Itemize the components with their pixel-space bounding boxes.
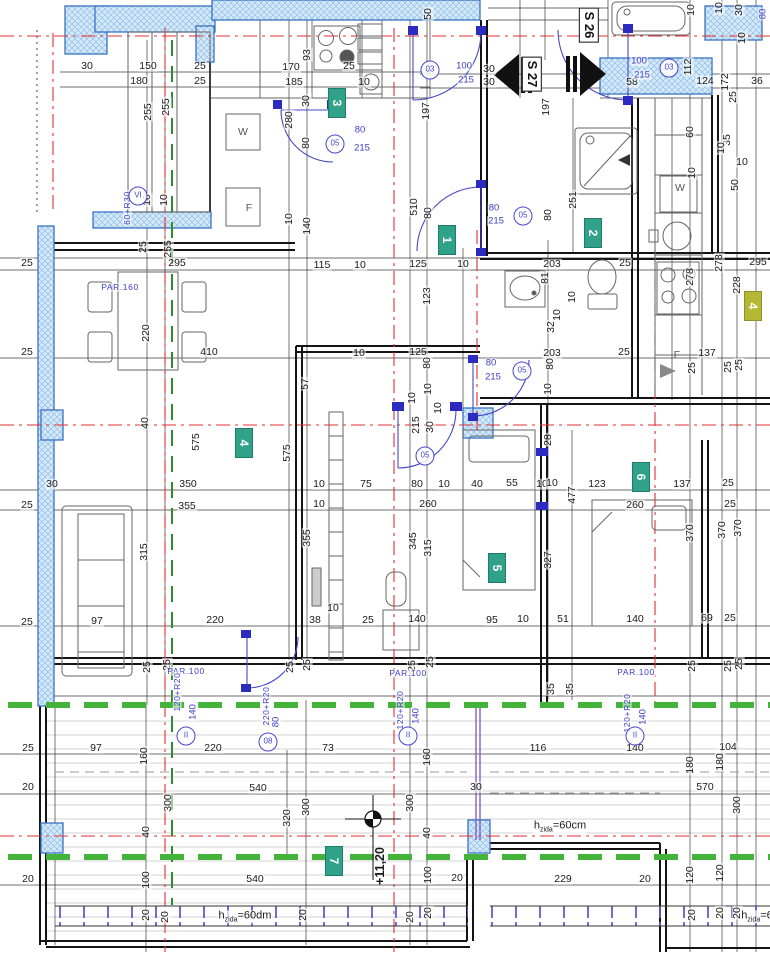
dimension-label: 25 [687,659,698,673]
dimension-label: 251 [568,190,579,210]
door-size-label: 80 [485,358,498,368]
door-size-label: 80 [488,203,501,213]
dimension-label: 35 [565,682,576,696]
dimension-label: 20 [160,910,171,924]
circled-tag-05: 05 [513,362,532,381]
door-size-label: PAR.160 [100,283,140,292]
dimension-label: 540 [248,783,268,794]
dimension-label: 140 [302,216,313,236]
dimension-label: 172 [720,72,731,92]
dimension-label: 10 [326,603,340,614]
dimension-label: 112 [683,58,694,77]
dimension-label: 36 [750,76,764,87]
circled-tag-II: II [399,727,418,746]
circled-tag-08: 08 [259,733,278,752]
door-size-label: 220+R20 [262,686,271,727]
dimension-label: 228 [732,275,743,295]
room-badge-7: 7 [325,846,343,876]
dimension-label: 60 [685,125,696,139]
dimension-label: 10 [735,157,749,168]
dimension-label: 25 [302,658,313,672]
dimension-label: 25 [723,613,737,624]
dimension-label: 25 [285,660,296,674]
dimension-label: 510 [409,197,420,217]
dimension-label: 220 [205,615,225,626]
dimension-label: 140 [625,614,645,625]
door-size-label: 140 [411,707,421,725]
dimension-label: 25 [617,347,631,358]
dimension-label: 25 [342,61,356,72]
dimension-label: 540 [245,874,265,885]
dimension-label: 25 [193,61,207,72]
section-label: S 27 [522,57,542,92]
dimension-label: 278 [714,253,725,273]
wall-height-label: hzida=6 [740,910,770,923]
dimension-label: 81 [540,271,551,285]
dimension-label: 295 [167,258,187,269]
dimension-label: 370 [733,518,744,538]
dimension-label: 160 [139,746,150,766]
dimension-label: 80 [301,136,312,150]
dimension-label: 40 [470,479,484,490]
dimension-label: 25 [193,76,207,87]
door-size-label: 140 [638,708,648,726]
dimension-label: 25 [21,743,35,754]
dimension-label: 20 [21,874,35,885]
door-size-label: 215 [487,216,505,226]
dimension-label: 278 [685,267,696,287]
room-badge-3: 3 [328,88,346,118]
dimension-label: 10 [423,382,434,396]
dimension-label: 20 [405,910,416,924]
dimension-label: 255 [161,97,172,117]
dimension-label: 370 [685,523,696,543]
floor-plan: 3015025180252552551010252552959317025185… [0,0,770,953]
fixture-label: F [245,203,253,214]
dimension-label: 10 [687,166,698,180]
dimension-label: 25 [734,358,745,372]
dimension-label: 25 [721,478,735,489]
dimension-label: 477 [567,485,578,505]
dimension-label: 20 [21,782,35,793]
dimension-label: 20 [423,906,434,920]
fixture-label: W [674,183,686,194]
door-size-label: 215 [484,372,502,382]
dimension-label: 10 [686,3,697,17]
dimension-label: 355 [177,501,197,512]
dimension-label: 203 [542,259,562,270]
dimension-label: 300 [163,793,174,813]
dimension-label: 355 [302,528,313,548]
dimension-label: 140 [407,614,427,625]
dimension-label: 10 [159,193,170,207]
dimension-label: 20 [687,908,698,922]
door-size-label: 140 [188,703,198,721]
dimension-label: 10 [352,348,366,359]
dimension-label: 95 [485,615,499,626]
dimension-label: 97 [90,616,104,627]
dimension-label: 229 [553,874,573,885]
dimension-label: 25 [361,615,375,626]
room-badge-2: 2 [584,218,602,248]
dimension-label: 260 [418,499,438,510]
dimension-label: 575 [191,432,202,452]
dimension-label: 80 [410,479,424,490]
level-label: +11,20 [374,846,387,886]
dimension-label: 370 [717,520,728,540]
dimension-label: 255 [143,102,154,122]
dimension-label: 25 [723,499,737,510]
dimension-label: 25 [20,500,34,511]
dimension-label: 197 [541,97,552,117]
dimension-label: 10 [714,1,725,15]
dimension-label: 137 [697,348,717,359]
dimension-label: 123 [422,286,433,306]
dimension-label: 315 [423,538,434,558]
door-size-label: 215 [633,70,651,80]
dimension-label: 180 [715,752,726,772]
dimension-label: 137 [672,479,692,490]
dimension-label: 80 [545,357,556,371]
wall-height-label: hzida=60dm [218,910,273,923]
dimension-label: 25 [734,657,745,671]
dimension-label: 20 [638,874,652,885]
dimension-label: 25 [723,659,734,673]
dimension-label: 10 [357,77,371,88]
dimension-label: 220 [203,743,223,754]
dimension-label: 327 [543,550,554,570]
door-size-label: 215 [457,75,475,85]
dimension-label: 25 [723,360,734,374]
dimension-label: 260 [625,500,645,511]
dimension-label: 38 [308,615,322,626]
dimension-label: 30 [482,77,496,88]
dimension-label: 30 [734,3,745,17]
dimension-label: 350 [178,479,198,490]
door-size-label: 100 [630,56,648,66]
dimension-label: 100 [141,870,152,890]
dimension-label: 75 [359,479,373,490]
dimension-label: 410 [199,347,219,358]
room-badge-6: 6 [632,462,650,492]
door-size-label: PAR.100 [616,668,656,677]
dimension-label: 124 [695,76,715,87]
dimension-label: 20 [450,873,464,884]
door-size-label: 120+R20 [173,672,182,713]
dimension-label: 40 [422,826,433,840]
room-badge-1: 1 [438,225,456,255]
dimension-label: 80 [423,206,434,220]
dimension-label: 300 [405,793,416,813]
dimension-label: 280 [284,110,295,130]
section-label: S 26 [579,8,599,43]
dimension-label: 575 [282,443,293,463]
room-badge-4: 4 [235,428,253,458]
dimension-label: 25 [142,660,153,674]
dimension-label: 10 [543,382,554,396]
dimension-label: 25 [20,617,34,628]
dimension-label: 120 [715,863,726,883]
dimension-label: 55 [505,478,519,489]
dimension-label: 73 [321,743,335,754]
circled-tag-II: II [177,727,196,746]
dimension-label: 97 [89,743,103,754]
dimension-label: 25 [20,347,34,358]
dimension-label: 93 [302,48,313,62]
dimension-label: 170 [281,62,301,73]
dimension-label: 40 [141,825,152,839]
dimension-label: 10 [284,212,295,226]
label-layer: 3015025180252552551010252552959317025185… [0,0,770,953]
dimension-label: 30 [425,420,436,434]
dimension-label: 10 [716,141,727,155]
dimension-label: 80 [543,208,554,222]
dimension-label: 10 [407,391,418,405]
dimension-label: 220 [141,323,152,343]
door-size-label: 80 [271,716,281,729]
circled-tag-03: 03 [660,59,679,78]
dimension-label: 115 [313,260,332,271]
dimension-label: 125 [408,259,428,270]
circled-tag-05: 05 [514,207,533,226]
dimension-label: 69 [700,613,714,624]
circled-tag-03: 03 [421,61,440,80]
dimension-label: 28 [543,433,554,447]
door-size-label: 120+R20 [396,690,405,731]
dimension-label: 25 [20,258,34,269]
dimension-label: 57 [300,377,311,391]
dimension-label: 40 [140,416,151,430]
circled-tag-VI: VI [129,187,148,206]
circled-tag-II: II [626,727,645,746]
dimension-label: 30 [482,64,496,75]
dimension-label: 300 [301,797,312,817]
dimension-label: 10 [312,479,326,490]
dimension-label: 30 [45,479,59,490]
door-size-label: 215 [353,143,371,153]
dimension-label: 20 [141,908,152,922]
dimension-label: 50 [730,178,741,192]
dimension-label: 25 [138,240,149,254]
dimension-label: 570 [695,782,715,793]
dimension-label: 25 [728,90,739,104]
dimension-label: 300 [732,795,743,815]
room-badge-4: 4 [744,291,762,321]
dimension-label: 10 [545,478,559,489]
fixture-label: W [237,127,249,138]
circled-tag-05: 05 [326,135,345,154]
dimension-label: 20 [715,906,726,920]
door-size-label: PAR.100 [388,669,428,678]
dimension-label: 25 [618,258,632,269]
dimension-label: 35 [546,682,557,696]
dimension-label: 10 [433,401,444,415]
room-badge-5: 5 [488,553,506,583]
door-size-label: 80 [758,8,768,21]
dimension-label: 185 [284,77,304,88]
dimension-label: 30 [301,94,312,108]
dimension-label: 104 [718,742,738,753]
dimension-label: 180 [129,76,149,87]
dimension-label: 116 [529,743,548,754]
dimension-label: 345 [408,531,419,551]
dimension-label: 30 [80,61,94,72]
dimension-label: 10 [567,290,578,304]
dimension-label: 197 [421,101,432,121]
dimension-label: 215 [411,415,422,435]
dimension-label: 50 [423,7,434,21]
dimension-label: 20 [298,908,309,922]
fixture-label: F [673,350,681,361]
dimension-label: 295 [748,257,768,268]
dimension-label: 180 [685,755,696,775]
dimension-label: 123 [587,479,607,490]
dimension-label: 10 [737,31,748,45]
dimension-label: 10 [437,479,451,490]
dimension-label: 160 [422,747,433,767]
dimension-label: 51 [556,614,570,625]
dimension-label: 100 [423,865,434,885]
dimension-label: 150 [138,61,158,72]
wall-height-label: hzida=60cm [533,820,587,833]
dimension-label: 10 [456,259,470,270]
dimension-label: 32 [546,320,557,334]
dimension-label: 30 [469,782,483,793]
dimension-label: 120 [685,865,696,885]
door-size-label: 80 [354,125,367,135]
dimension-label: 80 [422,356,433,370]
door-size-label: 100 [455,61,473,71]
dimension-label: 315 [139,542,150,562]
dimension-label: 320 [282,808,293,828]
dimension-label: 10 [353,260,367,271]
dimension-label: 25 [687,361,698,375]
dimension-label: 10 [516,614,530,625]
circled-tag-05: 05 [416,447,435,466]
dimension-label: 10 [312,499,326,510]
